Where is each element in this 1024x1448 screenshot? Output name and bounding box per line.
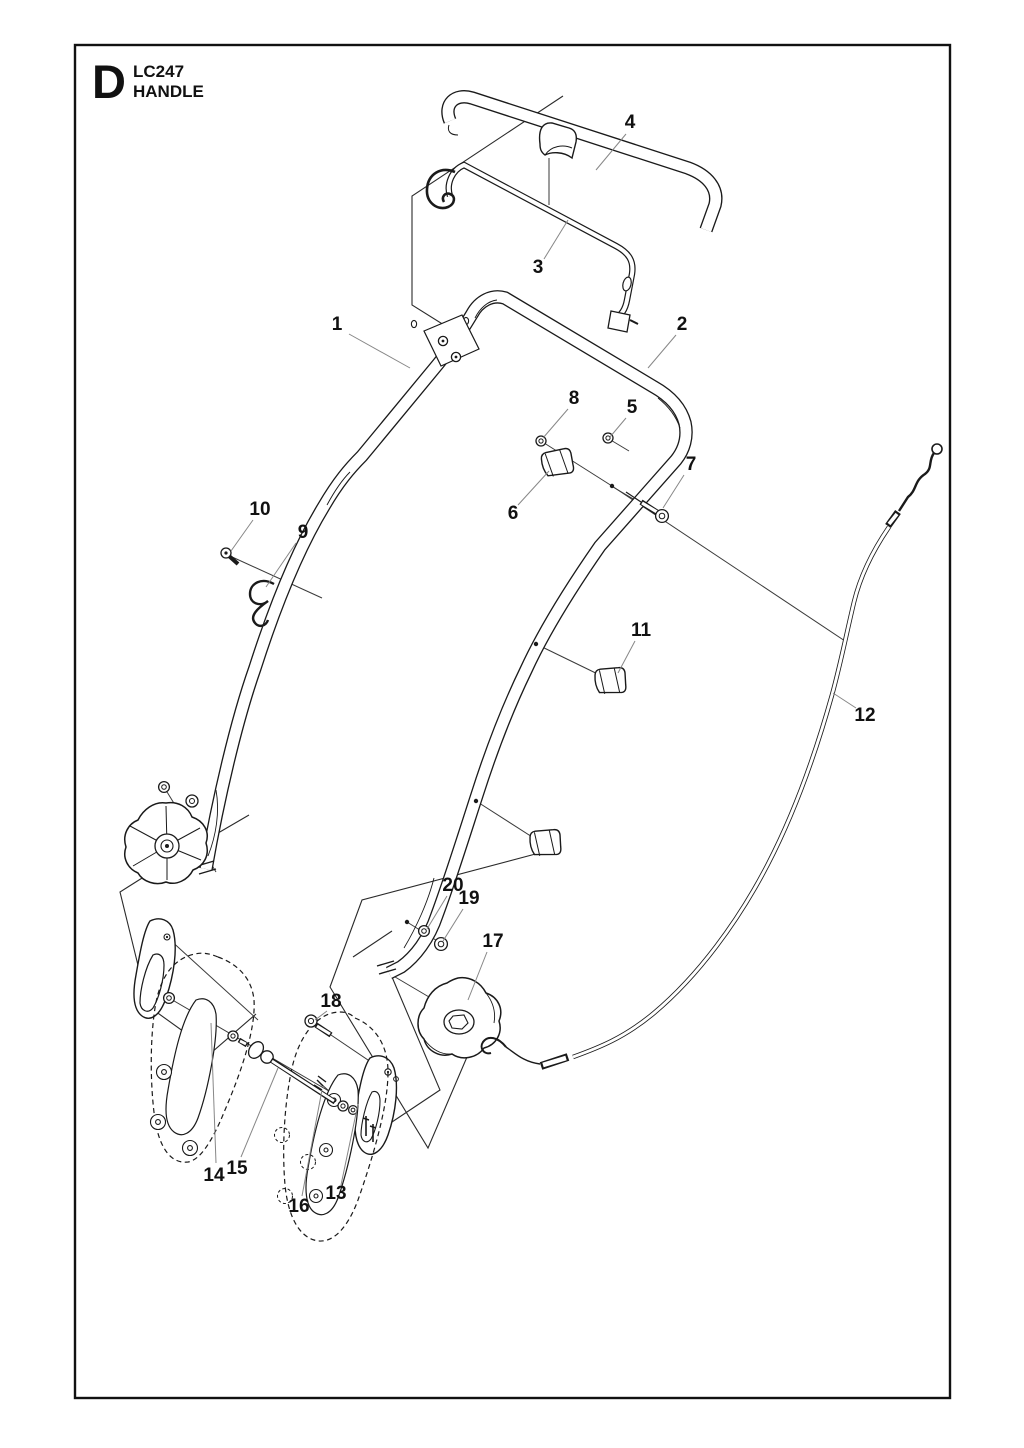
fasteners	[159, 433, 669, 1114]
callout-label-6: 6	[508, 503, 519, 524]
callout-label-10: 10	[249, 499, 270, 520]
cable-clamp-11	[594, 666, 628, 696]
cable-clamp-6	[539, 446, 575, 479]
leader-line-5	[610, 418, 626, 437]
sheet-name: HANDLE	[133, 82, 204, 101]
callout-label-11: 11	[631, 620, 652, 641]
callout-label-14: 14	[203, 1165, 225, 1186]
leader-line-1	[349, 334, 410, 368]
callout-label-18: 18	[320, 991, 341, 1012]
callout-label-4: 4	[625, 112, 636, 133]
callout-label-2: 2	[677, 314, 688, 335]
handle-tube-assembly	[197, 297, 686, 974]
model-number: LC247	[133, 62, 184, 81]
callout-label-20: 20	[442, 875, 463, 896]
callout-label-13: 13	[325, 1183, 346, 1204]
bail-clip	[540, 123, 577, 158]
callout-label-7: 7	[686, 454, 697, 475]
callout-label-12: 12	[854, 705, 875, 726]
line-clamp-to-cable	[612, 486, 845, 641]
leader-line-3	[544, 220, 568, 259]
leader-line-6	[518, 471, 549, 505]
tube-end-ridges	[197, 861, 396, 974]
callout-label-8: 8	[569, 388, 580, 409]
callout-label-5: 5	[627, 397, 638, 418]
leader-line-11	[618, 641, 635, 673]
callout-label-17: 17	[482, 931, 503, 952]
title-block: D LC247 HANDLE	[92, 55, 204, 108]
bail-rod-tab	[608, 311, 630, 332]
leader-line-10	[231, 520, 253, 551]
leader-line-8	[543, 409, 568, 438]
leader-line-12	[833, 693, 856, 708]
handle-tube-outline	[206, 297, 686, 973]
tube-hole	[411, 320, 416, 327]
callout-label-9: 9	[298, 522, 309, 543]
callout-label-3: 3	[533, 257, 544, 278]
leader-line-2	[648, 335, 676, 368]
cable-clamp-lower	[529, 828, 563, 858]
bail-handle-4	[448, 97, 716, 230]
callout-label-16: 16	[288, 1196, 309, 1217]
page-border	[75, 45, 950, 1398]
part-callouts: 1234567891011121314151617181920	[203, 112, 875, 1217]
section-letter: D	[92, 55, 126, 108]
knob-17	[418, 978, 501, 1058]
cable-12	[482, 444, 942, 1066]
knob-left	[125, 803, 207, 884]
ipl-page: D LC247 HANDLE	[0, 0, 1024, 1448]
leader-line-15	[241, 1068, 278, 1157]
callout-label-15: 15	[226, 1158, 248, 1179]
callout-label-1: 1	[332, 314, 343, 335]
leader-line-19	[443, 909, 463, 941]
